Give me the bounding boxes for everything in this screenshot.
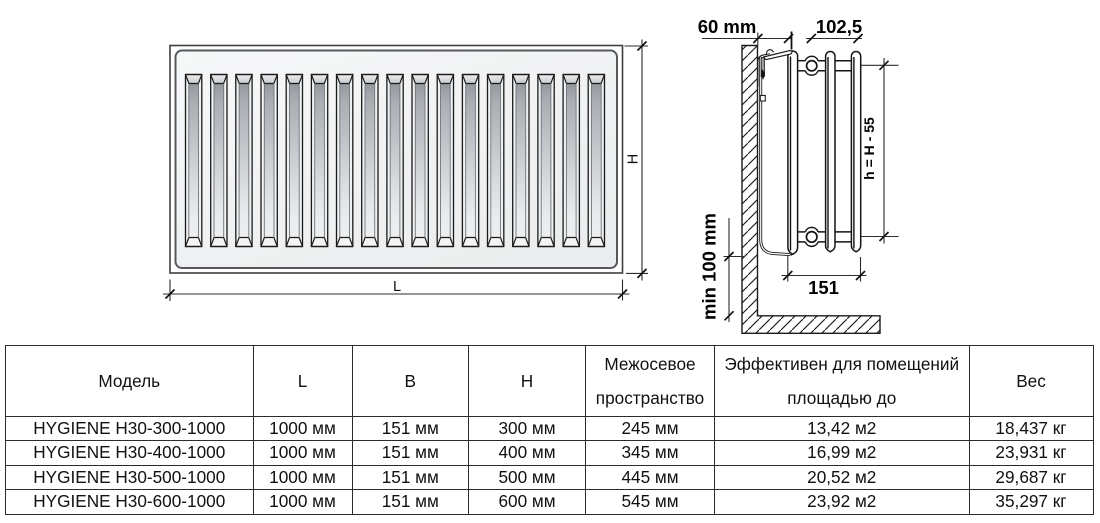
svg-text:h = H - 55: h = H - 55 xyxy=(861,117,877,180)
svg-text:60 mm: 60 mm xyxy=(698,16,757,37)
svg-text:102,5: 102,5 xyxy=(816,16,862,37)
svg-text:151: 151 xyxy=(808,277,839,298)
svg-text:H: H xyxy=(625,154,641,164)
svg-text:min 100 mm: min 100 mm xyxy=(698,213,719,320)
svg-text:L: L xyxy=(393,279,401,295)
